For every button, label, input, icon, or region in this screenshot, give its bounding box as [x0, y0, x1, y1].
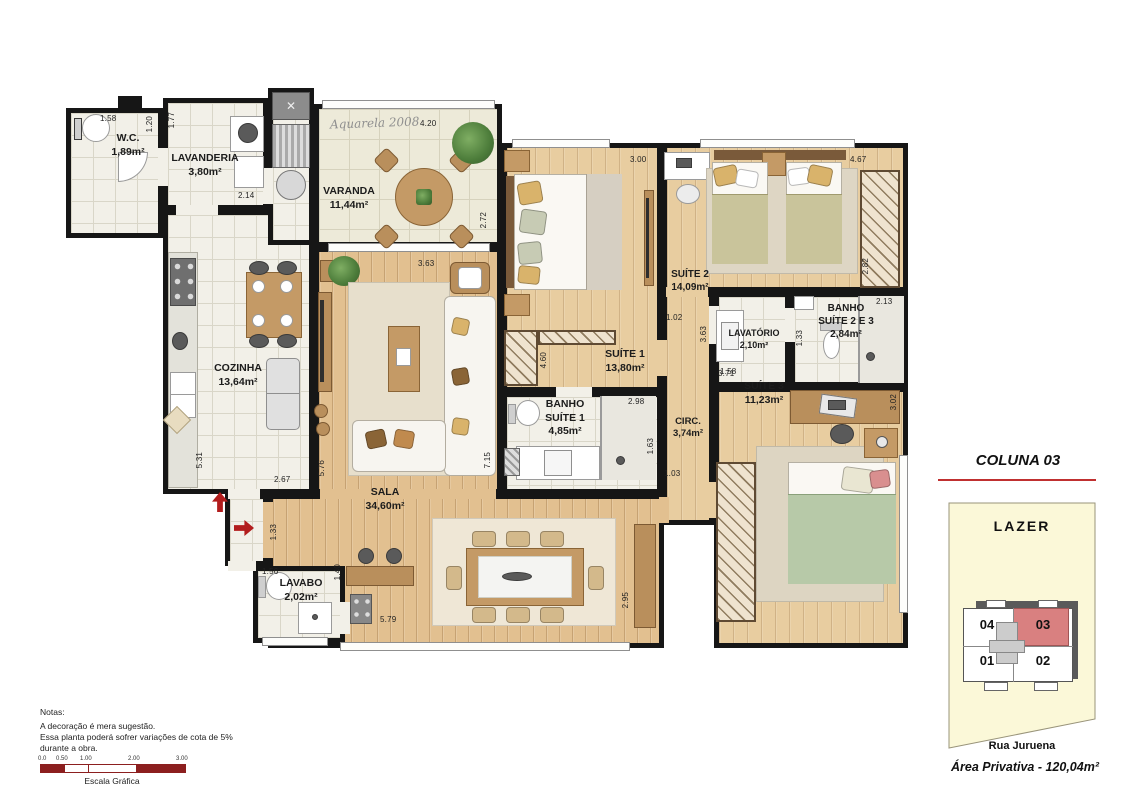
- vent-grille: [272, 124, 310, 168]
- dim-suite1-h: 4.60: [540, 352, 548, 368]
- door-opening: [176, 205, 218, 215]
- shower-head-icon: [616, 456, 625, 465]
- door-opening: [228, 489, 260, 499]
- fridge-divider: [266, 393, 300, 394]
- headboard: [506, 176, 514, 288]
- balcony-tab: [986, 600, 1006, 608]
- shower-head-icon: [866, 352, 875, 361]
- room-name: LAVANDERIA: [150, 152, 260, 166]
- plate: [252, 314, 265, 327]
- pillow: [735, 168, 760, 189]
- dining-chair: [540, 607, 564, 623]
- room-name: COZINHA: [183, 362, 293, 376]
- unit-02-label: 02: [1028, 653, 1058, 668]
- pillow: [869, 469, 891, 490]
- room-name: LAVATÓRIO: [711, 328, 797, 340]
- dim-dining-h: 2.95: [622, 592, 630, 608]
- notes-heading: Notas:: [40, 706, 65, 719]
- room-area: 11,44m²: [295, 199, 403, 213]
- dining-chair: [588, 566, 604, 590]
- bed-blanket: [788, 494, 896, 584]
- room-name: SALA: [330, 486, 440, 500]
- scale-tick: 2.00: [128, 756, 140, 762]
- label-lavanderia: LAVANDERIA 3,80m²: [150, 152, 260, 179]
- washer-drum: [238, 123, 258, 143]
- window: [262, 637, 328, 646]
- room-name: SUÍTE 2: [645, 268, 735, 281]
- pillow: [517, 265, 541, 285]
- label-lavatorio: LAVATÓRIO 2,10m²: [711, 328, 797, 351]
- dining-chair: [506, 607, 530, 623]
- shaft-hatch: [504, 448, 520, 476]
- dim-suite2-h: 2.82: [862, 258, 870, 274]
- room-area: 13,64m²: [183, 376, 293, 390]
- scale-segment: [88, 764, 138, 773]
- street-label: Rua Juruena: [948, 740, 1096, 752]
- dim-wc-height: 1.20: [146, 116, 154, 132]
- sink-icon: [544, 450, 572, 476]
- dining-chair: [472, 531, 496, 547]
- room-area: 2,84m²: [796, 328, 896, 341]
- dim-suite3-top: 3.71: [718, 370, 734, 378]
- dining-chair: [472, 607, 496, 623]
- dim-suite3-h: 3.02: [890, 394, 898, 410]
- room-area: 2,02m²: [256, 591, 346, 605]
- desk-chair: [676, 184, 700, 204]
- sink-drain: [312, 614, 318, 620]
- plate: [280, 280, 293, 293]
- room-area: 2,10m²: [711, 340, 797, 352]
- floor-plan-page: ✕: [0, 0, 1130, 799]
- room-name: CIRC.: [656, 416, 720, 428]
- dim-circ-door: 1.02: [666, 314, 682, 322]
- computer-screen: [828, 400, 846, 410]
- room-area: 4,85m²: [520, 425, 610, 439]
- scale-tick: 0.0: [38, 756, 46, 762]
- notes-line: durante a obra.: [40, 742, 98, 755]
- dim-cozinha-h: 5.31: [196, 452, 204, 468]
- scale-segment: [136, 764, 186, 773]
- dim-banho23-h: 1.33: [796, 330, 804, 346]
- dim-lavanderia-w: 2.14: [238, 192, 254, 200]
- dim-wc-width: 1.58: [100, 115, 116, 123]
- dim-banho23-w: 2.13: [876, 298, 892, 306]
- scale-tick: 0.50: [56, 756, 68, 762]
- bed-blanket: [586, 174, 622, 290]
- door-opening: [556, 387, 592, 397]
- dim-suite2-w: 4.67: [850, 156, 866, 164]
- room-name: SUÍTE 1: [570, 348, 680, 362]
- dim-cozinha-w: 2.67: [274, 476, 290, 484]
- dim-sala-w: 3.63: [418, 260, 434, 268]
- stool: [358, 548, 374, 564]
- room-name: SUÍTE 3: [719, 380, 809, 394]
- scale-segment: [64, 764, 90, 773]
- lazer-label: LAZER: [948, 518, 1096, 534]
- scale-caption: Escala Gráfica: [40, 776, 184, 786]
- scale-tick: 1.00: [80, 756, 92, 762]
- column-title: COLUNA 03: [940, 452, 1096, 469]
- balcony-tab: [1034, 682, 1058, 691]
- chair: [277, 261, 297, 275]
- dim-lavabo-h: 1.40: [334, 564, 342, 580]
- table-decor: [396, 348, 411, 366]
- laptop-icon: [676, 158, 692, 168]
- scale-tick: 3.00: [176, 756, 188, 762]
- balcony-tab: [1038, 600, 1058, 608]
- pillow: [516, 180, 543, 206]
- wardrobe: [504, 330, 538, 386]
- window: [899, 455, 908, 613]
- private-area-label: Área Privativa - 120,04m²: [920, 760, 1130, 774]
- title-underline: [938, 479, 1096, 481]
- kettle-icon: [172, 332, 188, 350]
- pillow: [517, 241, 543, 265]
- tv-icon: [320, 300, 324, 382]
- nightstand: [504, 150, 530, 172]
- unit-01-label: 01: [972, 653, 1002, 668]
- dim-sala-right: 7.15: [484, 452, 492, 468]
- dim-banho1-w: 2.98: [628, 398, 644, 406]
- pouf: [314, 404, 328, 418]
- door-opening: [263, 168, 273, 204]
- dim-banho1-h: 1.63: [647, 438, 655, 454]
- room-area: 3,80m²: [150, 166, 260, 180]
- tv-icon: [646, 198, 649, 278]
- dim-lavanderia-h: 1.77: [168, 112, 176, 128]
- wall-stub: [118, 96, 142, 110]
- dim-sala-left: 5.76: [318, 460, 326, 476]
- window: [340, 642, 630, 651]
- bed-blanket: [786, 194, 842, 264]
- room-area: 34,60m²: [330, 500, 440, 514]
- chair: [249, 261, 269, 275]
- pillow: [451, 417, 470, 436]
- room-area: 11,23m²: [719, 394, 809, 408]
- window: [700, 139, 855, 148]
- door-opening: [228, 561, 256, 571]
- door-opening: [659, 497, 669, 523]
- window: [322, 100, 495, 109]
- room-area: 13,80m²: [570, 362, 680, 376]
- plate: [280, 314, 293, 327]
- centerpiece: [502, 572, 532, 581]
- pouf: [316, 422, 330, 436]
- stool: [386, 548, 402, 564]
- nightstand: [504, 294, 530, 316]
- pillow: [450, 316, 470, 336]
- pillow: [393, 428, 416, 449]
- unit-04-label: 04: [972, 617, 1002, 632]
- dim-varanda-w: 4.20: [420, 120, 436, 128]
- label-suite2: SUÍTE 2 14,09m²: [645, 268, 735, 294]
- dim-hall-h: 1.33: [270, 524, 278, 540]
- scale-bar: 0.0 0.50 1.00 2.00 3.00 Escala Gráfica: [40, 756, 200, 788]
- table-plant: [416, 189, 432, 205]
- label-circ: CIRC. 3,74m²: [656, 416, 720, 441]
- window: [512, 139, 610, 148]
- toilet-tank: [508, 404, 516, 424]
- bed-blanket: [712, 194, 768, 264]
- lamp-icon: [876, 436, 888, 448]
- sideboard: [634, 524, 656, 628]
- dim-suite1-w: 3.00: [630, 156, 646, 164]
- balcony-tab: [984, 682, 1008, 691]
- dim-lavatorio-h: 3.63: [700, 326, 708, 342]
- label-lavabo: LAVABO 2,02m²: [256, 577, 346, 604]
- pillow: [451, 367, 471, 387]
- label-varanda: VARANDA 11,44m²: [295, 185, 403, 212]
- room-name: W.C.: [96, 132, 160, 146]
- dining-chair: [506, 531, 530, 547]
- plant-icon: [452, 122, 494, 164]
- dim-varanda-h: 2.72: [480, 212, 488, 228]
- label-cozinha: COZINHA 13,64m²: [183, 362, 293, 389]
- room-name: VARANDA: [295, 185, 403, 199]
- door-opening: [340, 602, 350, 634]
- plate: [252, 280, 265, 293]
- dim-sala-bottom: 5.79: [380, 616, 396, 624]
- desk-chair: [830, 424, 854, 444]
- label-sala: SALA 34,60m²: [330, 486, 440, 513]
- scale-segment: [40, 764, 66, 773]
- floor-plan: ✕: [0, 0, 940, 700]
- wardrobe: [716, 462, 756, 622]
- room-area: 3,74m²: [656, 428, 720, 440]
- room-name: BANHO SUÍTE 1: [520, 398, 610, 425]
- unit-03-label: 03: [1028, 617, 1058, 632]
- pillow: [518, 208, 547, 235]
- label-suite3: SUÍTE 3 11,23m²: [719, 380, 809, 407]
- chair: [249, 334, 269, 348]
- sink-divider: [170, 394, 196, 395]
- cooktop-icon: [350, 594, 372, 624]
- dining-chair: [446, 566, 462, 590]
- label-suite1: SUÍTE 1 13,80m²: [570, 348, 680, 375]
- chair: [277, 334, 297, 348]
- toilet-tank: [74, 118, 82, 140]
- room-area: 14,09m²: [645, 281, 735, 294]
- stove-icon: [170, 258, 196, 306]
- core-wing: [989, 640, 1025, 653]
- duct-box: ✕: [272, 92, 310, 120]
- armchair-cushion: [458, 267, 482, 289]
- label-banho-suites23: BANHO SUÍTE 2 E 3 2,84m²: [796, 302, 896, 341]
- dim-lavabo-w: 1.56: [262, 568, 278, 576]
- wardrobe: [538, 330, 616, 345]
- label-banho-suite1: BANHO SUÍTE 1 4,85m²: [520, 398, 610, 439]
- dim-circ-w: 1.03: [664, 470, 680, 478]
- bar-counter: [346, 566, 414, 586]
- dining-chair: [540, 531, 564, 547]
